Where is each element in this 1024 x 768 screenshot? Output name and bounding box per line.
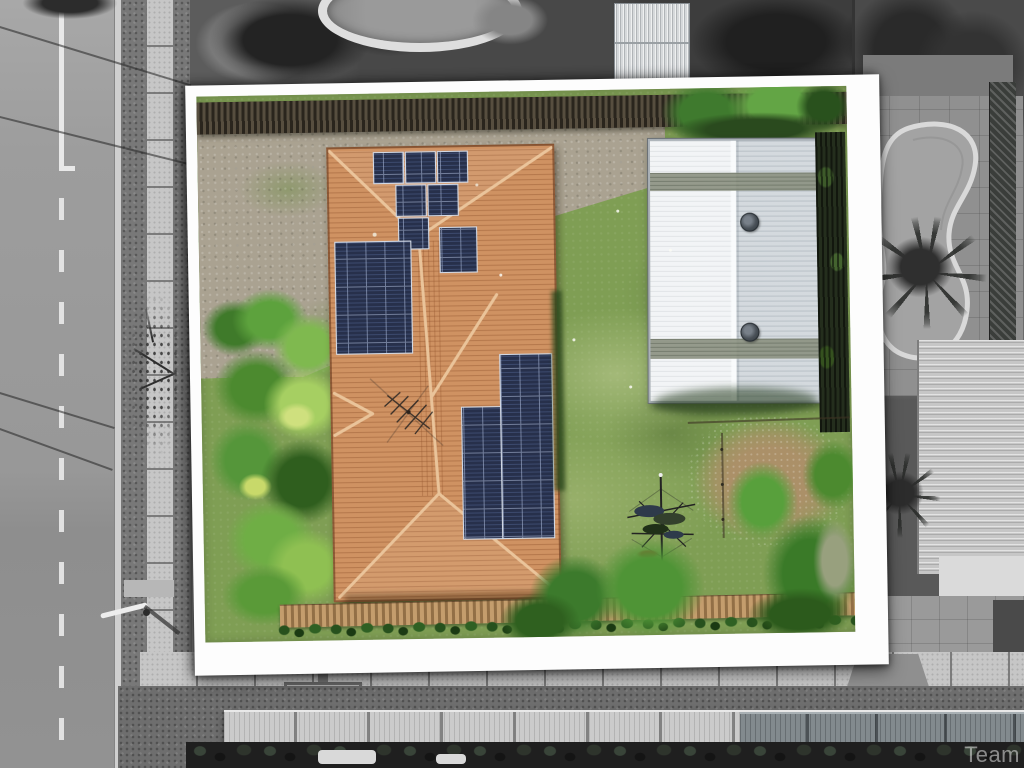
- bare-tree: [116, 268, 196, 480]
- shed-skylight-band: [650, 172, 818, 190]
- hedge-beside-house: [552, 291, 565, 491]
- garden-plants: [186, 742, 1024, 768]
- house-roof: [326, 144, 562, 603]
- neighbour-shed-roof: [614, 3, 690, 85]
- photo-watermark: Team: [964, 742, 1020, 768]
- washing: [642, 524, 668, 534]
- tree-canopy: [745, 586, 856, 643]
- road-centre-line: [59, 0, 64, 168]
- solar-panel: [396, 185, 427, 216]
- whirlybird-vent: [740, 213, 759, 232]
- solar-panel: [405, 152, 436, 183]
- light-patch: [436, 754, 466, 764]
- solar-array-rear-left: [462, 407, 503, 540]
- shed-skylight-band: [650, 338, 818, 358]
- palm-tree-centre: [885, 235, 955, 299]
- metal-shed: [648, 138, 821, 402]
- whirlybird-vent: [740, 323, 759, 342]
- solar-array-centre: [440, 227, 478, 273]
- house: [326, 144, 562, 603]
- solar-panel: [428, 184, 459, 215]
- concrete-pad: [124, 580, 174, 597]
- solar-array-rear: [500, 354, 555, 539]
- ground-patch: [470, 0, 550, 46]
- road-line-jog: [59, 166, 75, 171]
- property-scene: [196, 86, 855, 643]
- solar-panel: [437, 151, 468, 182]
- shed-roof-seam: [615, 42, 689, 44]
- solar-panel: [373, 152, 404, 183]
- side-fence: [815, 132, 850, 432]
- property-highlight-frame: [185, 74, 889, 675]
- light-patch: [318, 750, 376, 764]
- solar-array-left: [335, 241, 413, 354]
- aerial-photo: Team: [0, 0, 1024, 768]
- road-dashed-line: [59, 198, 64, 768]
